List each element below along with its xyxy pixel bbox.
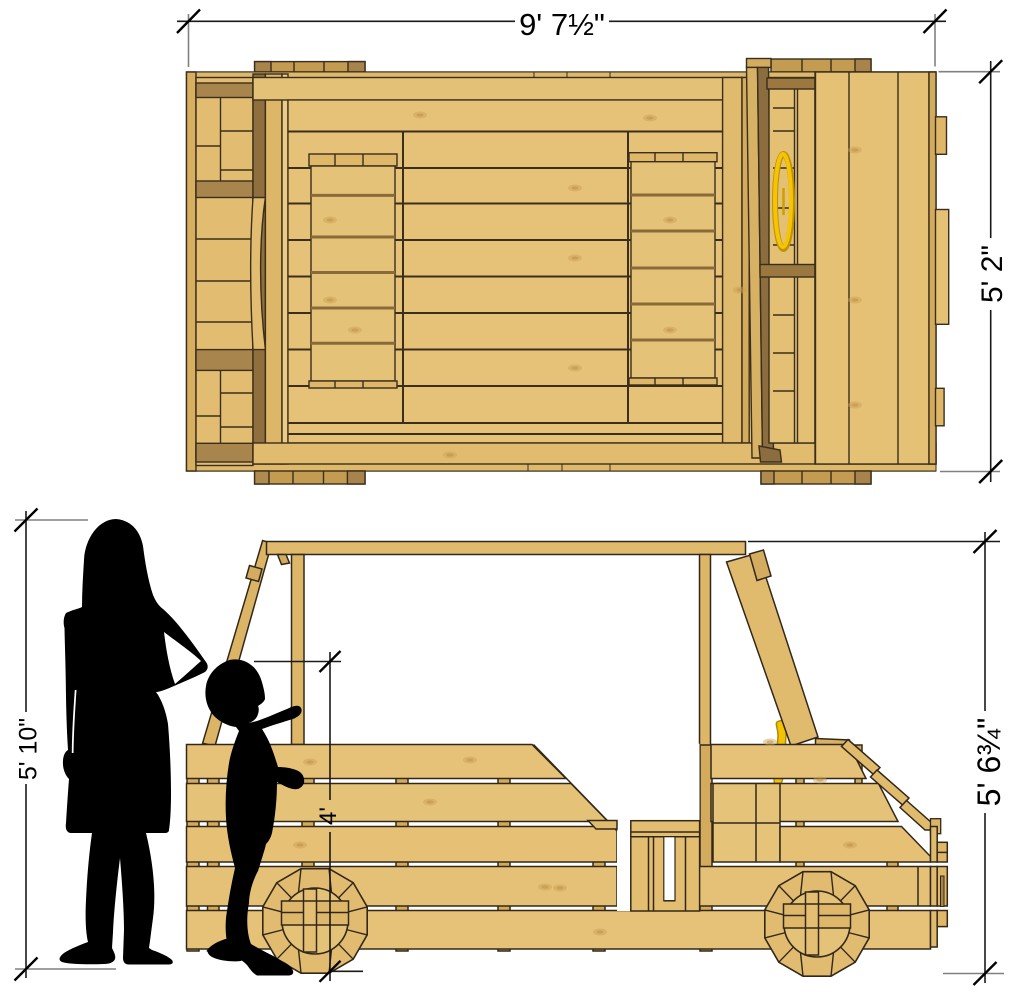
svg-text:4': 4' <box>315 807 342 825</box>
svg-text:9' 7½": 9' 7½" <box>519 7 605 42</box>
svg-text:5' 10": 5' 10" <box>15 718 43 780</box>
svg-text:5' 2": 5' 2" <box>976 245 1009 303</box>
svg-text:5' 6¾": 5' 6¾" <box>971 718 1007 807</box>
